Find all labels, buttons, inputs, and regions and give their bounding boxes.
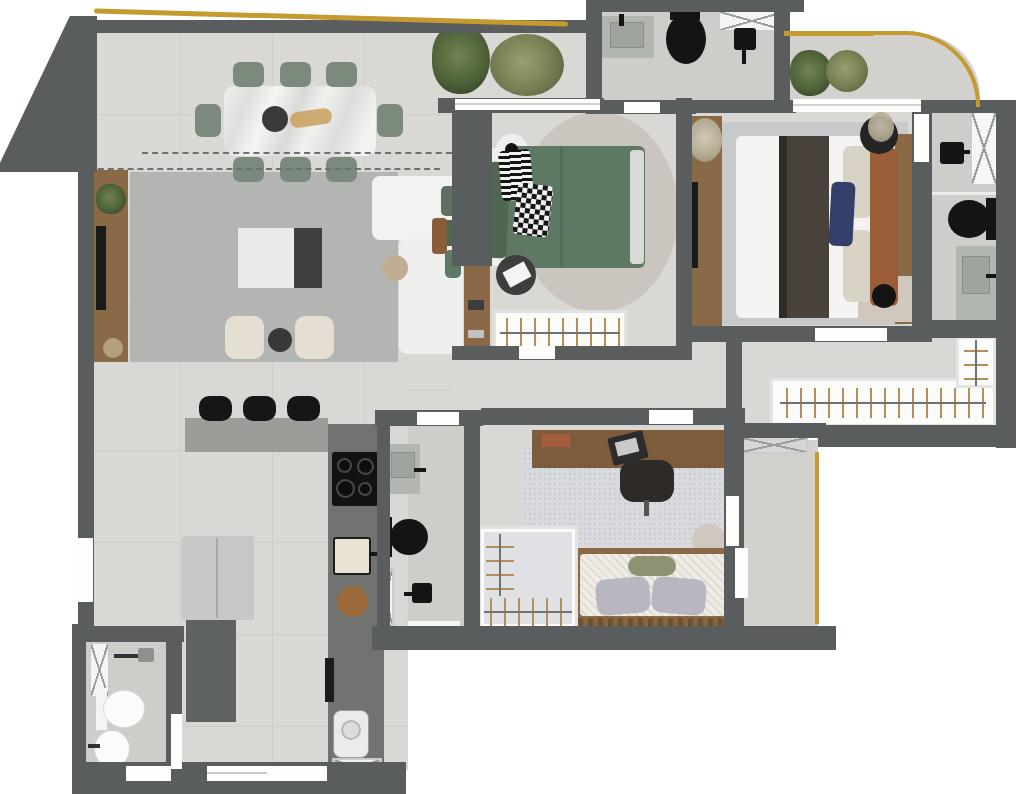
bar-stool — [287, 396, 320, 421]
hall-console-decor — [468, 300, 484, 310]
cooktop-burner — [357, 458, 374, 475]
gold-rail-topright — [784, 31, 874, 36]
master-navy-pillow — [828, 181, 855, 246]
wall — [818, 425, 1016, 447]
kitchen-sink — [333, 537, 371, 575]
service-shower-head — [138, 648, 154, 662]
refrigerator-handle — [216, 538, 218, 618]
bar-counter — [185, 418, 328, 452]
wall — [452, 346, 692, 360]
wall — [726, 340, 742, 428]
projection-dashed-line — [142, 152, 462, 154]
table-tray — [262, 106, 288, 132]
bar-stool — [199, 396, 232, 421]
bathroom2-toilet — [666, 14, 706, 64]
wall — [481, 408, 745, 425]
master-bed-throw-stripe — [779, 136, 787, 318]
hall-console — [464, 264, 490, 358]
coffee-table-white — [238, 228, 294, 288]
master-closet-hangers-side — [964, 340, 988, 386]
bathroom2-faucet — [619, 14, 624, 26]
round-pouf — [382, 255, 408, 281]
side-table — [268, 328, 292, 352]
bathroom3-toilet — [390, 519, 428, 555]
bar-stool — [243, 396, 276, 421]
bedroom2-duvet-fold — [560, 146, 563, 268]
coffee-table-dark — [294, 228, 322, 288]
wall — [372, 626, 836, 650]
master-closet-hangers — [780, 388, 986, 418]
bedroom2-closet-hangers — [500, 318, 620, 348]
dining-chair — [326, 62, 357, 87]
projection-dashed-line — [88, 168, 440, 170]
masterbath-shower-head — [940, 142, 964, 164]
service-toilet — [103, 690, 145, 728]
service-bath-door-leaf — [171, 714, 182, 769]
dining-chair — [280, 62, 311, 87]
dining-chair — [377, 104, 403, 137]
dining-chair — [233, 62, 264, 87]
wall — [586, 0, 602, 114]
cooktop-burner — [358, 482, 372, 496]
door-threshold-office — [649, 410, 693, 424]
sliding-door-panel — [735, 548, 748, 598]
office-chair-post — [644, 500, 649, 516]
master-rust-cushion — [870, 148, 898, 306]
office-closet-hangers-h — [484, 598, 572, 626]
office-chair — [620, 460, 674, 502]
door-threshold-bathroom2 — [624, 102, 660, 113]
master-nightstand-flowers — [868, 112, 894, 142]
balcony-plant — [826, 50, 868, 92]
tall-cabinet — [186, 620, 236, 722]
bathroom2-sink — [610, 22, 644, 48]
armchair — [295, 316, 334, 359]
service-sink-faucet — [88, 744, 100, 748]
television — [96, 226, 106, 310]
armchair — [225, 316, 264, 359]
balcony-gold-rail-right — [815, 452, 819, 624]
sofa-throw — [432, 218, 447, 254]
wall — [377, 418, 390, 650]
door-threshold-master — [815, 328, 887, 341]
bathroom3-shower-head — [412, 583, 432, 603]
office-bed-pillow — [651, 576, 708, 617]
cooktop-burner — [337, 458, 352, 473]
door-threshold-bathroom3 — [417, 412, 459, 425]
wall — [464, 418, 480, 630]
floor-plan-canvas — [0, 0, 1024, 794]
cooktop-burner — [336, 479, 355, 498]
wall — [452, 98, 492, 266]
window-top-balcony-sill — [455, 103, 600, 105]
door-threshold-bedroom2 — [519, 346, 555, 359]
gold-rail-curve — [866, 31, 980, 107]
service-entry-door — [126, 766, 171, 781]
bedroom2-blanket-edge — [630, 150, 644, 264]
masterbath-toilet — [948, 200, 990, 238]
wall — [774, 0, 790, 102]
bedroom2-checkered-pillow — [512, 182, 554, 238]
masterbath-shaft — [970, 110, 998, 186]
door-threshold-masterbath — [914, 114, 929, 162]
bathroom2-shower-arm — [742, 48, 746, 64]
wood-bowl — [337, 586, 368, 617]
washing-machine-door — [341, 720, 361, 740]
wall — [690, 100, 796, 113]
master-lamp — [872, 284, 896, 308]
oven-handle — [325, 658, 334, 702]
dining-chair — [195, 104, 221, 137]
bathroom3-sink — [391, 452, 415, 478]
entry-door-step — [207, 772, 267, 774]
office-bed-bolster — [628, 556, 676, 576]
window-left-wall — [78, 538, 93, 602]
balcony-ac-panel — [740, 436, 808, 454]
hall-console-decor — [468, 330, 484, 338]
console-decor — [103, 338, 123, 358]
wall — [740, 423, 826, 438]
masterbath-glass — [930, 192, 1000, 195]
wall — [996, 100, 1016, 448]
bathroom3-shower-arm — [404, 592, 414, 596]
balcony-plant — [432, 24, 490, 94]
wall — [676, 98, 692, 346]
balcony-plant — [490, 34, 564, 96]
balcony-bottomright-floor — [744, 440, 818, 626]
desk-books — [542, 434, 570, 447]
sliding-door-panel — [726, 496, 739, 546]
office-closet-hangers-v — [486, 534, 514, 596]
console-plant — [96, 184, 126, 214]
bathroom3-faucet — [414, 468, 426, 472]
master-dried-flowers — [688, 118, 722, 162]
office-bed-pillow — [595, 576, 652, 617]
refrigerator — [182, 536, 254, 620]
bathroom2-shower-head — [734, 28, 756, 50]
